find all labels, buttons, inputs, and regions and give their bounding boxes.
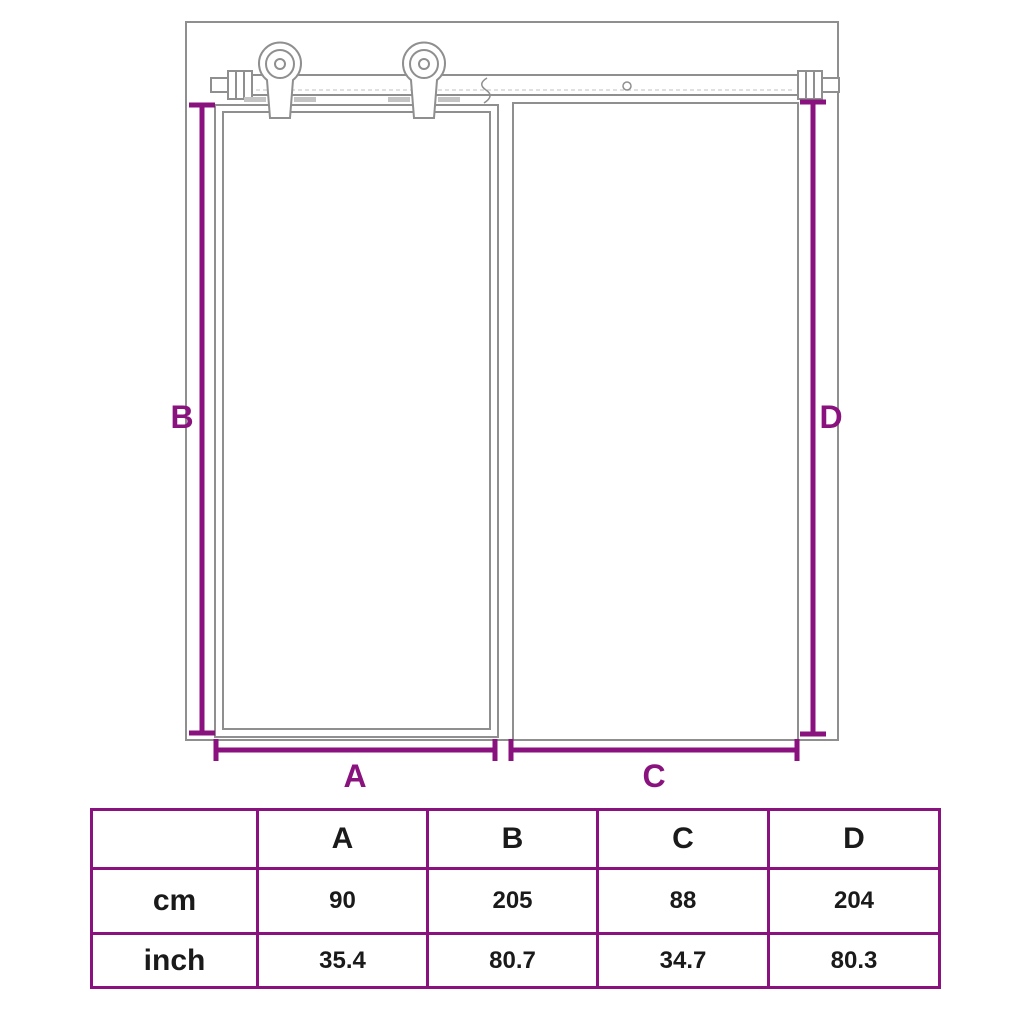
door-opening xyxy=(513,103,798,740)
dimension-label-a: A xyxy=(333,758,377,794)
table-corner-cell xyxy=(92,810,258,869)
value-c-inch: 34.7 xyxy=(598,934,769,988)
value-b-inch: 80.7 xyxy=(428,934,598,988)
table-header-c: C xyxy=(598,810,769,869)
value-a-inch: 35.4 xyxy=(258,934,428,988)
value-d-inch: 80.3 xyxy=(769,934,940,988)
mounting-plate xyxy=(244,97,266,102)
dimension-label-b: B xyxy=(160,399,204,435)
mounting-plate xyxy=(388,97,410,102)
page: B D A C A B C D cm 90 205 8 xyxy=(0,0,1024,1024)
track-rail xyxy=(252,75,798,95)
table-row-cm: cm 90 205 88 204 xyxy=(92,869,940,934)
table-header-row: A B C D xyxy=(92,810,940,869)
table-row-inch: inch 35.4 80.7 34.7 80.3 xyxy=(92,934,940,988)
dimensions-table: A B C D cm 90 205 88 204 inch 35.4 80.7 … xyxy=(90,808,941,989)
value-c-cm: 88 xyxy=(598,869,769,934)
row-label-cm: cm xyxy=(92,869,258,934)
rail-end-cap-right xyxy=(798,71,822,99)
value-a-cm: 90 xyxy=(258,869,428,934)
mounting-plate xyxy=(294,97,316,102)
table-header-d: D xyxy=(769,810,940,869)
value-d-cm: 204 xyxy=(769,869,940,934)
roller-hub-left xyxy=(275,59,285,69)
roller-hub-right xyxy=(419,59,429,69)
mounting-plate xyxy=(438,97,460,102)
table-header-a: A xyxy=(258,810,428,869)
dimension-label-d: D xyxy=(809,399,853,435)
door-diagram-svg xyxy=(0,0,1024,800)
row-label-inch: inch xyxy=(92,934,258,988)
value-b-cm: 205 xyxy=(428,869,598,934)
table-header-b: B xyxy=(428,810,598,869)
dimension-label-c: C xyxy=(632,758,676,794)
rail-end-cap-left xyxy=(228,71,252,99)
rail-end-stub-left xyxy=(211,78,228,92)
door-panel xyxy=(215,105,498,737)
rail-end-stub-right xyxy=(822,78,839,92)
sliding-door-diagram: B D A C xyxy=(0,0,1024,800)
